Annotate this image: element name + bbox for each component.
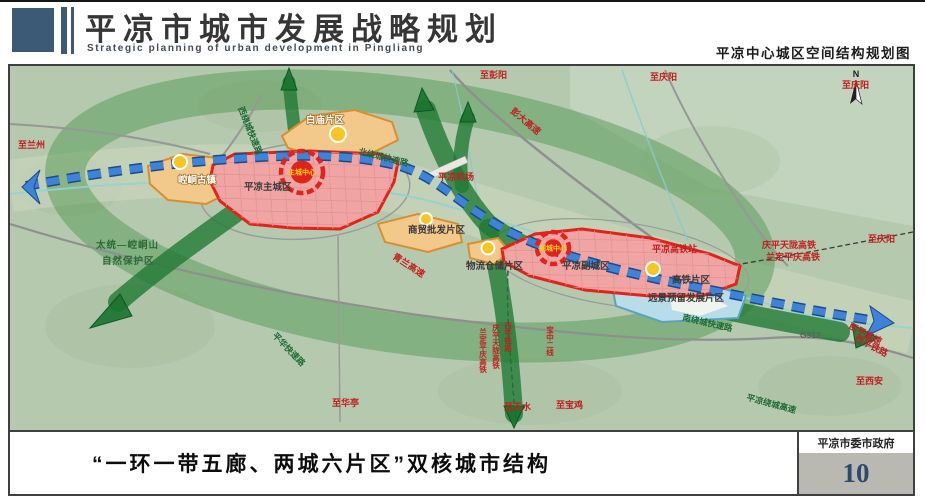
map-label: G312 — [800, 330, 821, 340]
content-frame: 主城中心副城中心 N 至兰州西绕城快速路北绕城快速路白庙片区彭大高速至彭阳至庆阳… — [8, 64, 915, 496]
brand-square — [12, 8, 54, 52]
map-svg: 主城中心副城中心 N 至兰州西绕城快速路北绕城快速路白庙片区彭大高速至彭阳至庆阳… — [10, 66, 913, 430]
core-label: 主城中心 — [288, 168, 316, 177]
map-label: 太统—崆峒山 — [96, 239, 159, 251]
organization-name: 平凉市委市政府 — [799, 432, 913, 453]
map-label: 至西安 — [856, 375, 883, 386]
page-title-english: Strategic planning of urban development … — [87, 43, 424, 54]
slide-caption: “一环一带五廊、两城六片区”双核城市结构 — [10, 432, 797, 494]
map-label: 平凉高铁站 — [652, 243, 697, 254]
map-label: 自然保护区 — [102, 255, 155, 267]
map-label: 庆平天陇高铁 — [491, 323, 500, 371]
map-title: 平凉中心城区空间结构规划图 — [716, 42, 911, 62]
map-label: 物流仓储片区 — [466, 260, 524, 272]
brand-bar-thin — [71, 7, 74, 54]
map-label: 至彭阳 — [480, 69, 507, 80]
map-label: 至庆阳 — [842, 79, 869, 90]
map-label: 平凉机场 — [438, 171, 474, 182]
footer: “一环一带五廊、两城六片区”双核城市结构 平凉市委市政府 10 — [10, 432, 913, 494]
header: 平凉市城市发展战略规划 Strategic planning of urban … — [0, 2, 925, 64]
map-label: 至庆阳 — [650, 71, 677, 82]
map-label: 至兰州 — [18, 139, 45, 150]
planning-map: 主城中心副城中心 N 至兰州西绕城快速路北绕城快速路白庙片区彭大高速至彭阳至庆阳… — [10, 66, 913, 432]
map-label: 高铁片区 — [672, 274, 711, 286]
map-label: 庆平天陇高铁 — [761, 239, 816, 250]
map-label: 平凉副城区 — [562, 260, 610, 272]
compass-n-label: N — [853, 69, 860, 79]
map-label: 兰定平庆高铁 — [766, 251, 820, 262]
map-label: 西平铁路 — [503, 322, 512, 354]
map-label: 平凉主城区 — [244, 181, 292, 193]
map-label: 白庙片区 — [306, 114, 345, 126]
map-label: 宝中二线 — [545, 325, 554, 358]
map-label: 至庆阳 — [868, 233, 895, 244]
map-label: 商贸批发片区 — [408, 224, 466, 236]
page-number: 10 — [799, 453, 913, 494]
org-page-box: 平凉市委市政府 10 — [797, 432, 913, 494]
map-label: 兰定平庆高铁 — [478, 327, 487, 375]
map-label: 远景预留发展片区 — [648, 292, 725, 304]
brand-bar-thick — [61, 7, 67, 54]
map-label: 至天水 — [504, 401, 532, 412]
map-label: 至华亭 — [332, 397, 359, 408]
planning-slide: 平凉市城市发展战略规划 Strategic planning of urban … — [0, 0, 925, 500]
core-label: 副城中心 — [539, 244, 567, 253]
map-label: 至宝鸡 — [556, 399, 583, 410]
map-label: 崆峒古镇 — [178, 174, 217, 186]
